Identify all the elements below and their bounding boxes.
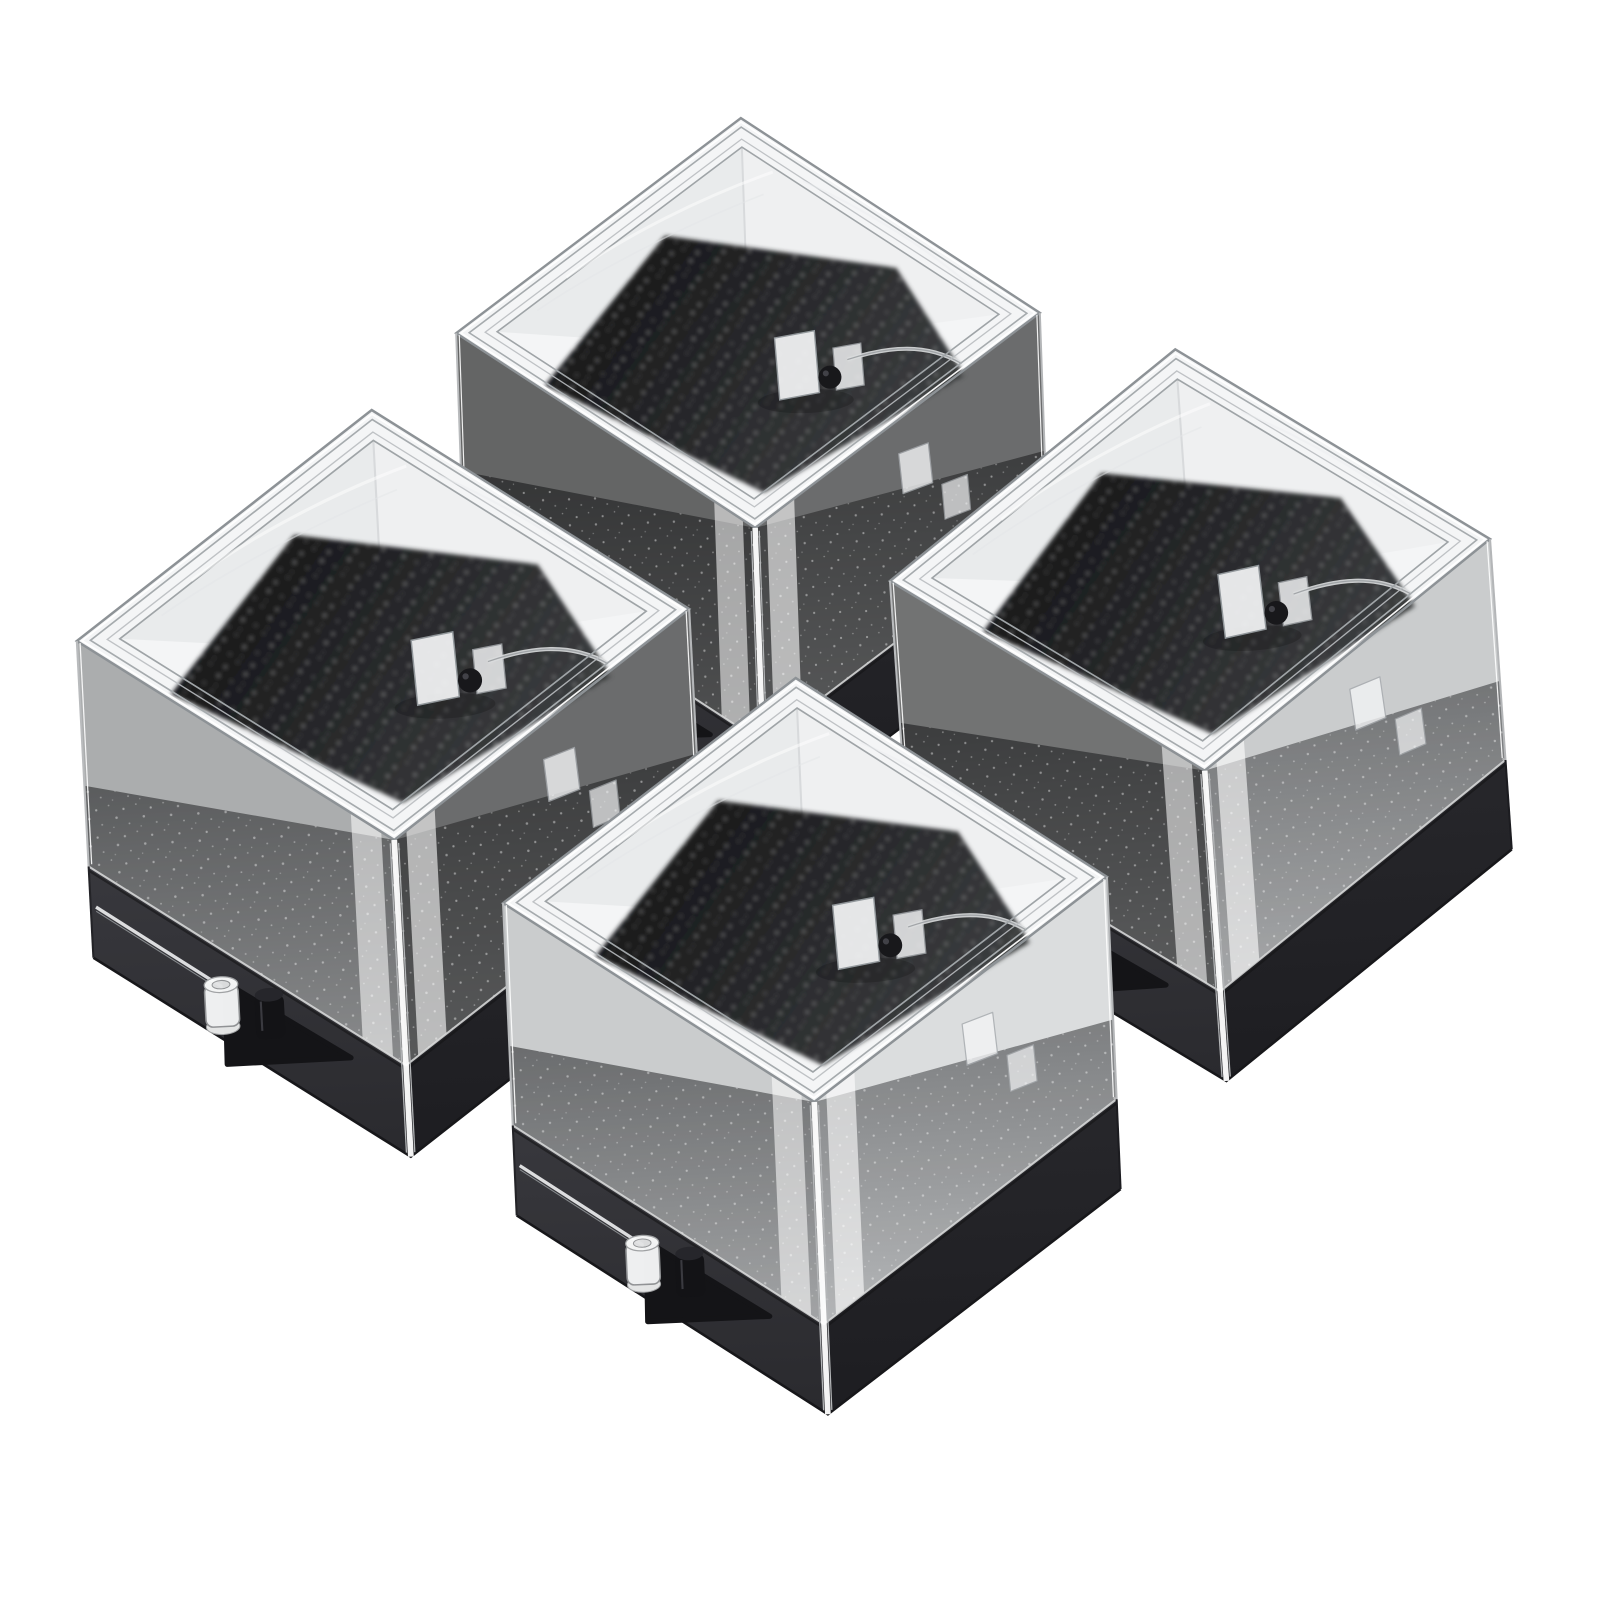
clasp-peg-black: [675, 1246, 706, 1297]
scene-canvas: [0, 0, 1600, 1600]
hinge-tab: [774, 331, 819, 400]
hinge-tab: [411, 632, 460, 706]
hinge-tab: [1217, 565, 1266, 638]
clasp-peg-black: [254, 987, 286, 1039]
clasp-peg-clear: [625, 1235, 661, 1293]
hinge-tab: [832, 897, 880, 969]
clasp-peg-clear: [204, 976, 241, 1035]
product-photo: Product photo: four clear square acrylic…: [0, 0, 1600, 1600]
